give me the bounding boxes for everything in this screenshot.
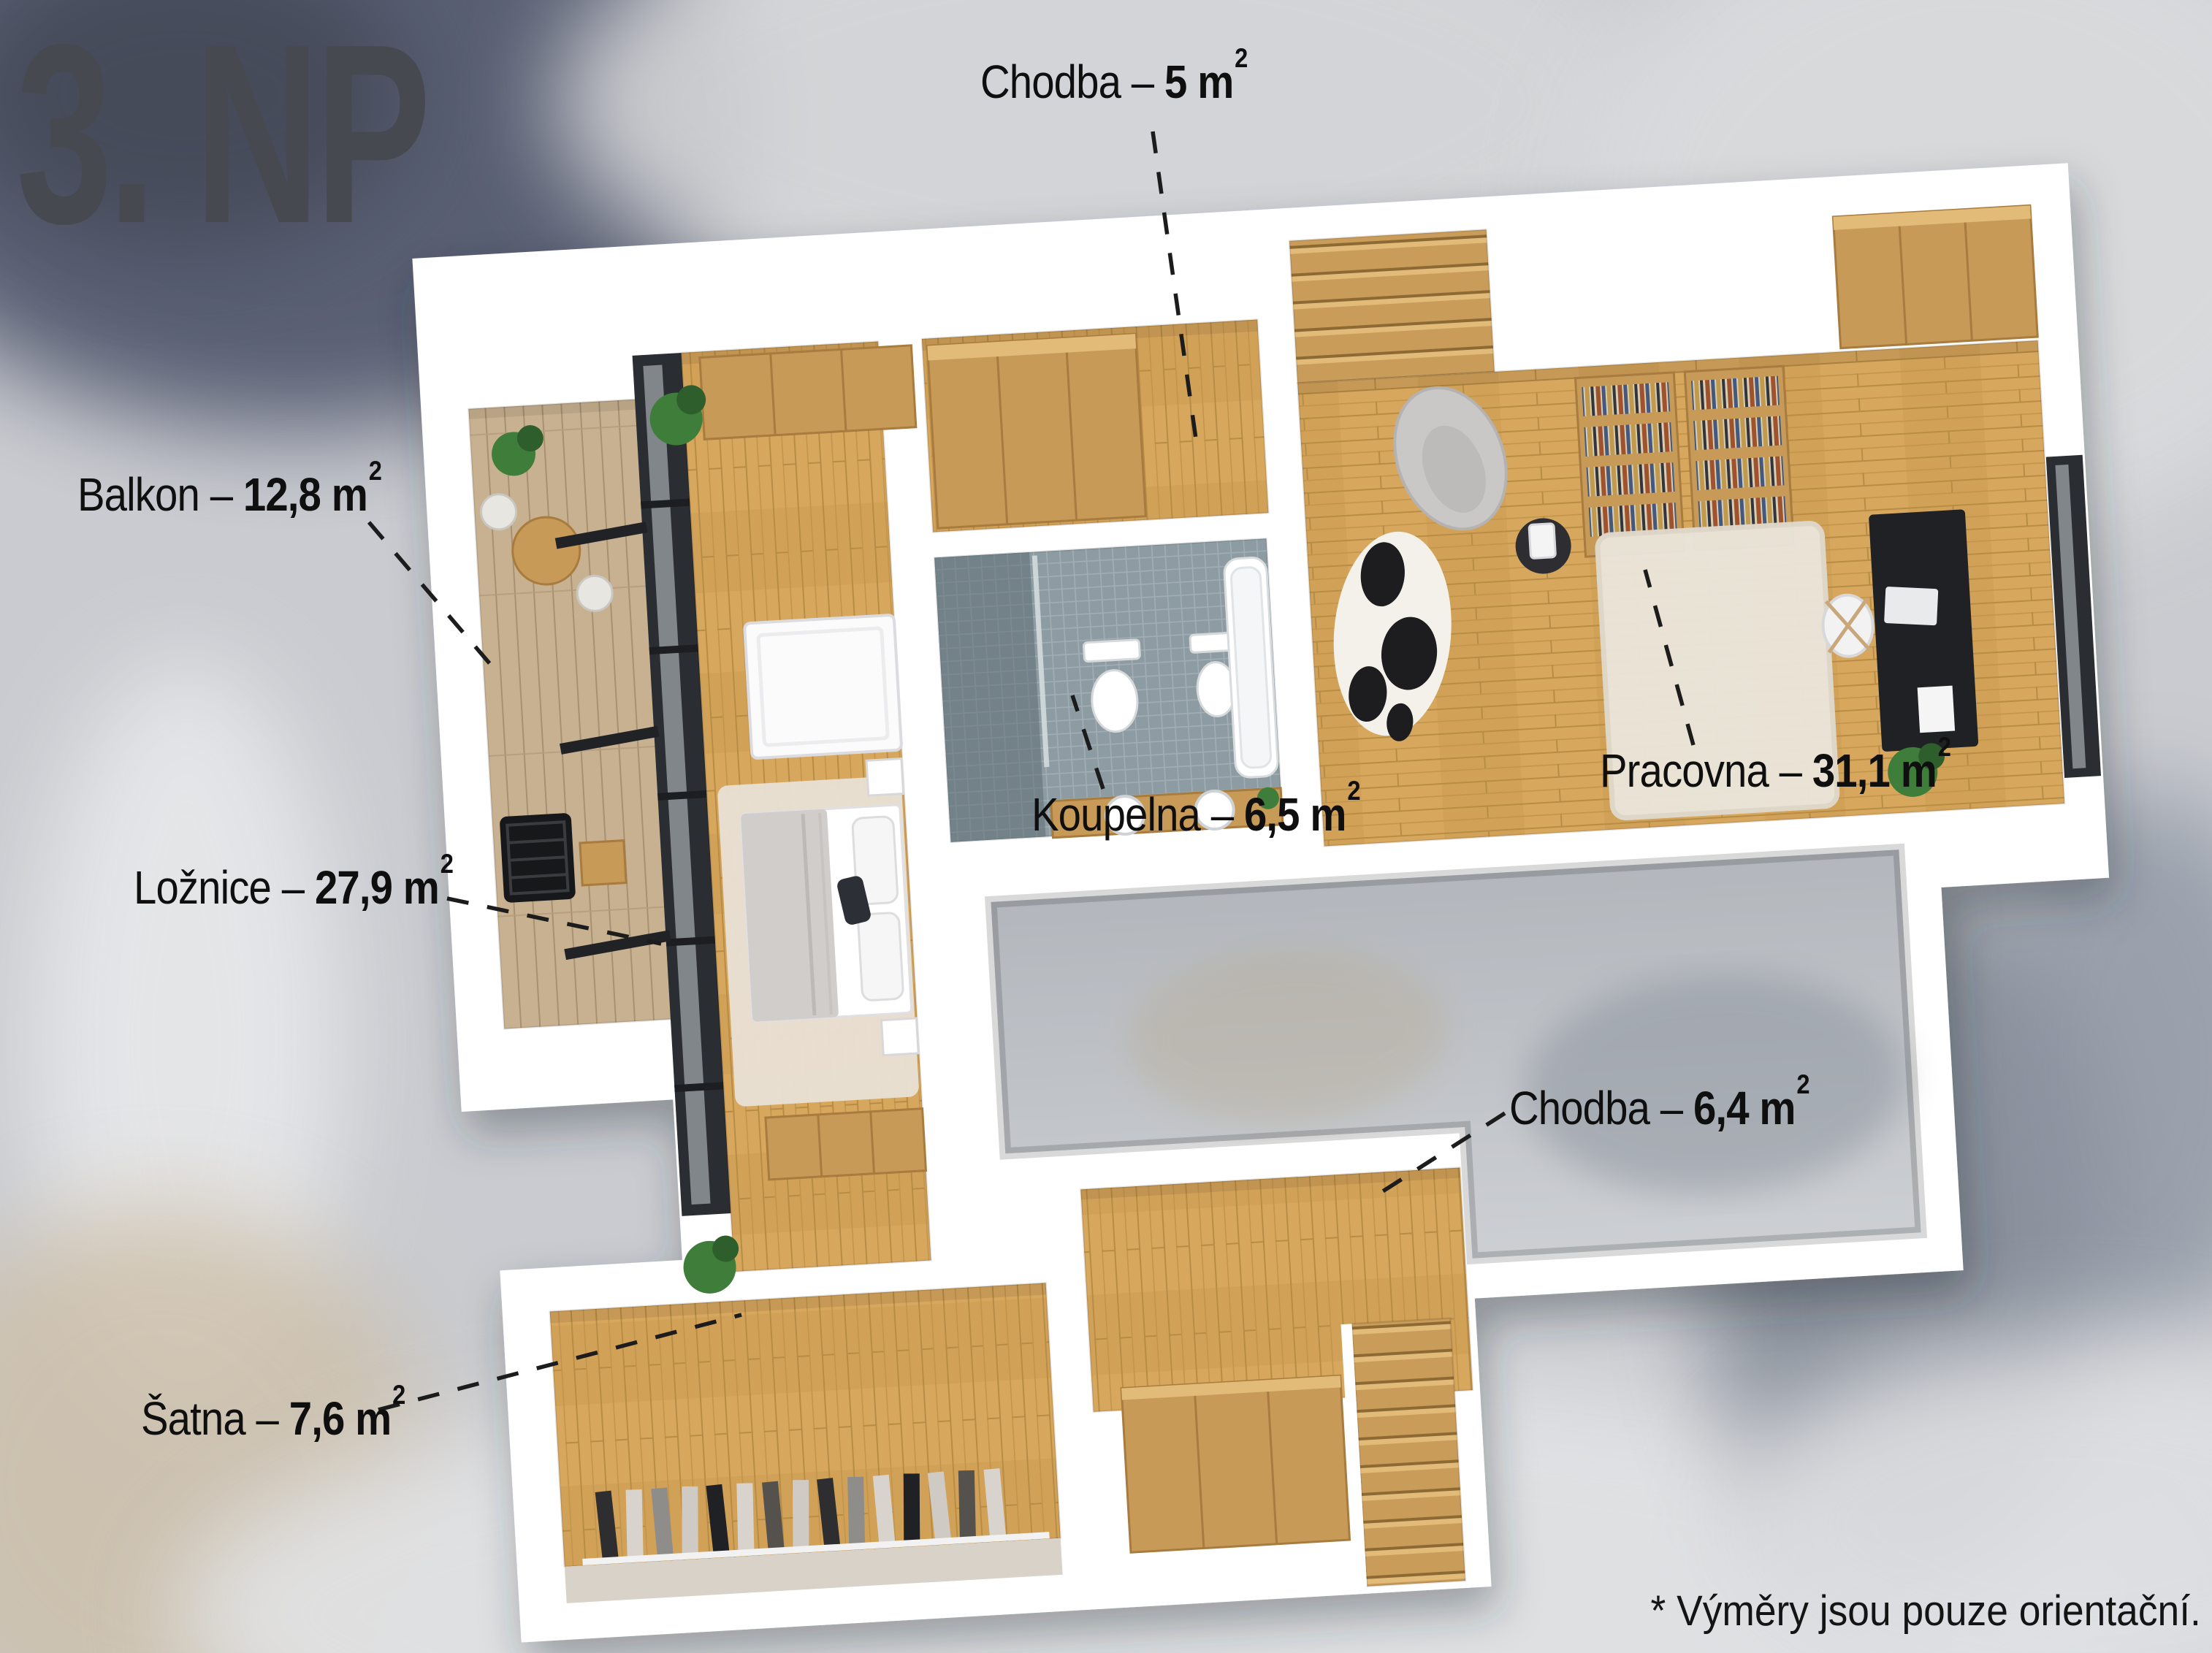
room-label-chodba-5: Chodba – 5 m2 (980, 55, 1247, 109)
stairs-down (1341, 1318, 1465, 1587)
bed (741, 805, 912, 1022)
room-name: Chodba – (980, 56, 1164, 108)
room-name: Balkon – (77, 468, 243, 521)
stairs-up (1289, 229, 1495, 383)
hallway-top (922, 320, 1268, 532)
bedroom-vanity (744, 615, 901, 758)
balcony-chair (480, 493, 517, 530)
walkin-closet (550, 1283, 1063, 1603)
room-area-sup: 2 (392, 1379, 405, 1410)
room-area-sup: 2 (1347, 775, 1359, 806)
room-name: Pracovna – (1600, 744, 1812, 797)
room-area: 7,6 m (289, 1392, 392, 1445)
room-label-pracovna: Pracovna – 31,1 m2 (1600, 744, 1950, 798)
room-label-balkon: Balkon – 12,8 m2 (77, 467, 381, 522)
floor-title: 3. NP (16, 0, 426, 269)
room-area-sup: 2 (369, 455, 381, 486)
room-name: Šatna – (141, 1392, 289, 1445)
room-area: 6,4 m (1693, 1082, 1796, 1134)
room-area: 27,9 m (315, 861, 439, 914)
shower (934, 552, 1045, 842)
room-area-sup: 2 (1938, 731, 1950, 762)
corridor-stairs (1080, 1167, 1484, 1601)
balcony-chair (576, 575, 614, 612)
disclaimer-note: * Výměry jsou pouze orientační. (1651, 1587, 2201, 1635)
room-area: 6,5 m (1244, 788, 1346, 841)
balcony-side-table (580, 841, 626, 885)
floorplan-page: 3. NP Chodba – 5 m2 Balkon – 12,8 m2 Lož… (0, 0, 2212, 1653)
room-area: 12,8 m (243, 468, 367, 521)
room-area: 31,1 m (1812, 744, 1937, 797)
corridor-wardrobe (1121, 1375, 1349, 1552)
room-area-sup: 2 (1235, 42, 1247, 73)
room-name: Ložnice – (134, 861, 315, 914)
grill (500, 813, 576, 903)
bedroom-dresser (766, 1109, 926, 1180)
room-area-sup: 2 (441, 848, 453, 879)
hall-wardrobe (927, 334, 1145, 528)
room-name: Koupelna – (1031, 788, 1244, 841)
room-label-satna: Šatna – 7,6 m2 (141, 1392, 405, 1446)
nightstand (866, 759, 904, 796)
pillow (858, 912, 904, 1001)
nightstand (882, 1018, 919, 1055)
room-name: Chodba – (1509, 1082, 1693, 1134)
room-label-chodba-64: Chodba – 6,4 m2 (1509, 1081, 1809, 1135)
bedroom-wardrobe (700, 346, 916, 440)
table-lamp (1529, 524, 1556, 559)
closet-top-right (1833, 205, 2037, 348)
room-area: 5 m (1164, 56, 1233, 108)
room-area-sup: 2 (1796, 1069, 1809, 1099)
desk (1869, 509, 1978, 752)
room-label-koupelna: Koupelna – 6,5 m2 (1031, 787, 1360, 841)
room-label-loznice: Ložnice – 27,9 m2 (134, 860, 453, 915)
